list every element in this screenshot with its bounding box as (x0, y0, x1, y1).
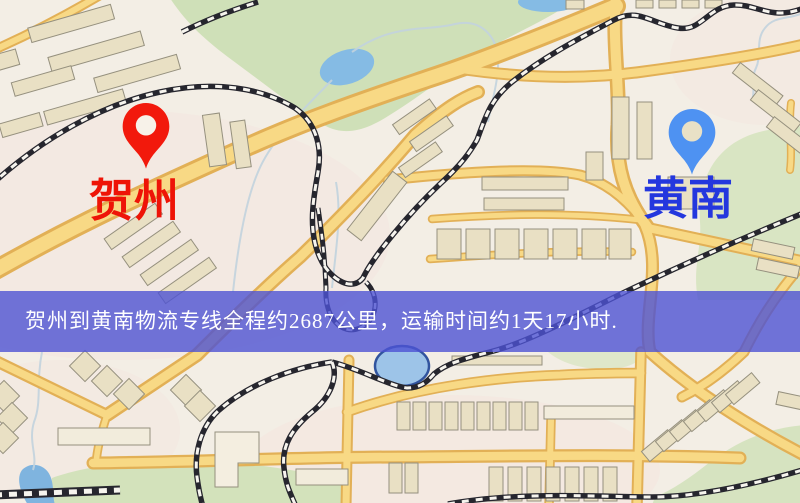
origin-label: 贺州 (89, 179, 179, 224)
origin-pin[interactable] (120, 101, 172, 171)
destination-label: 黄南 (643, 177, 733, 222)
location-pin-icon (666, 107, 718, 177)
destination-pin[interactable] (666, 107, 718, 177)
route-info-text: 贺州到黄南物流专线全程约2687公里，运输时间约1天17小时. (0, 291, 800, 352)
route-info-banner: 贺州到黄南物流专线全程约2687公里，运输时间约1天17小时. (0, 291, 800, 352)
map-view[interactable]: 贺州 黄南 贺州到黄南物流专线全程约2687公里，运输时间约1天17小时. (0, 0, 800, 503)
map-canvas[interactable] (0, 0, 800, 503)
location-pin-icon (120, 101, 172, 171)
